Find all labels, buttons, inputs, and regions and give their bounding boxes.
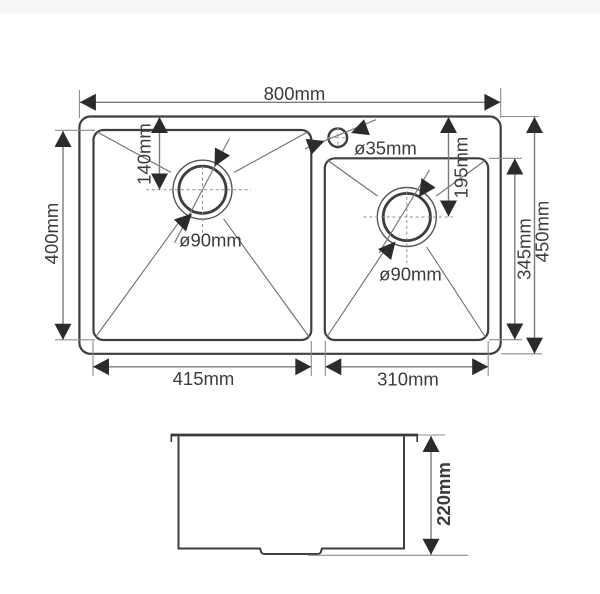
svg-text:450mm: 450mm [531, 201, 552, 263]
svg-text:415mm: 415mm [173, 368, 235, 389]
svg-text:310mm: 310mm [377, 369, 439, 390]
svg-text:140mm: 140mm [133, 123, 154, 185]
svg-text:195mm: 195mm [450, 137, 471, 199]
svg-text:ø90mm: ø90mm [379, 264, 442, 285]
svg-text:ø35mm: ø35mm [354, 138, 417, 159]
svg-text:800mm: 800mm [264, 83, 326, 104]
svg-text:400mm: 400mm [41, 203, 62, 265]
svg-text:ø90mm: ø90mm [179, 230, 242, 251]
svg-text:220mm: 220mm [433, 462, 454, 526]
